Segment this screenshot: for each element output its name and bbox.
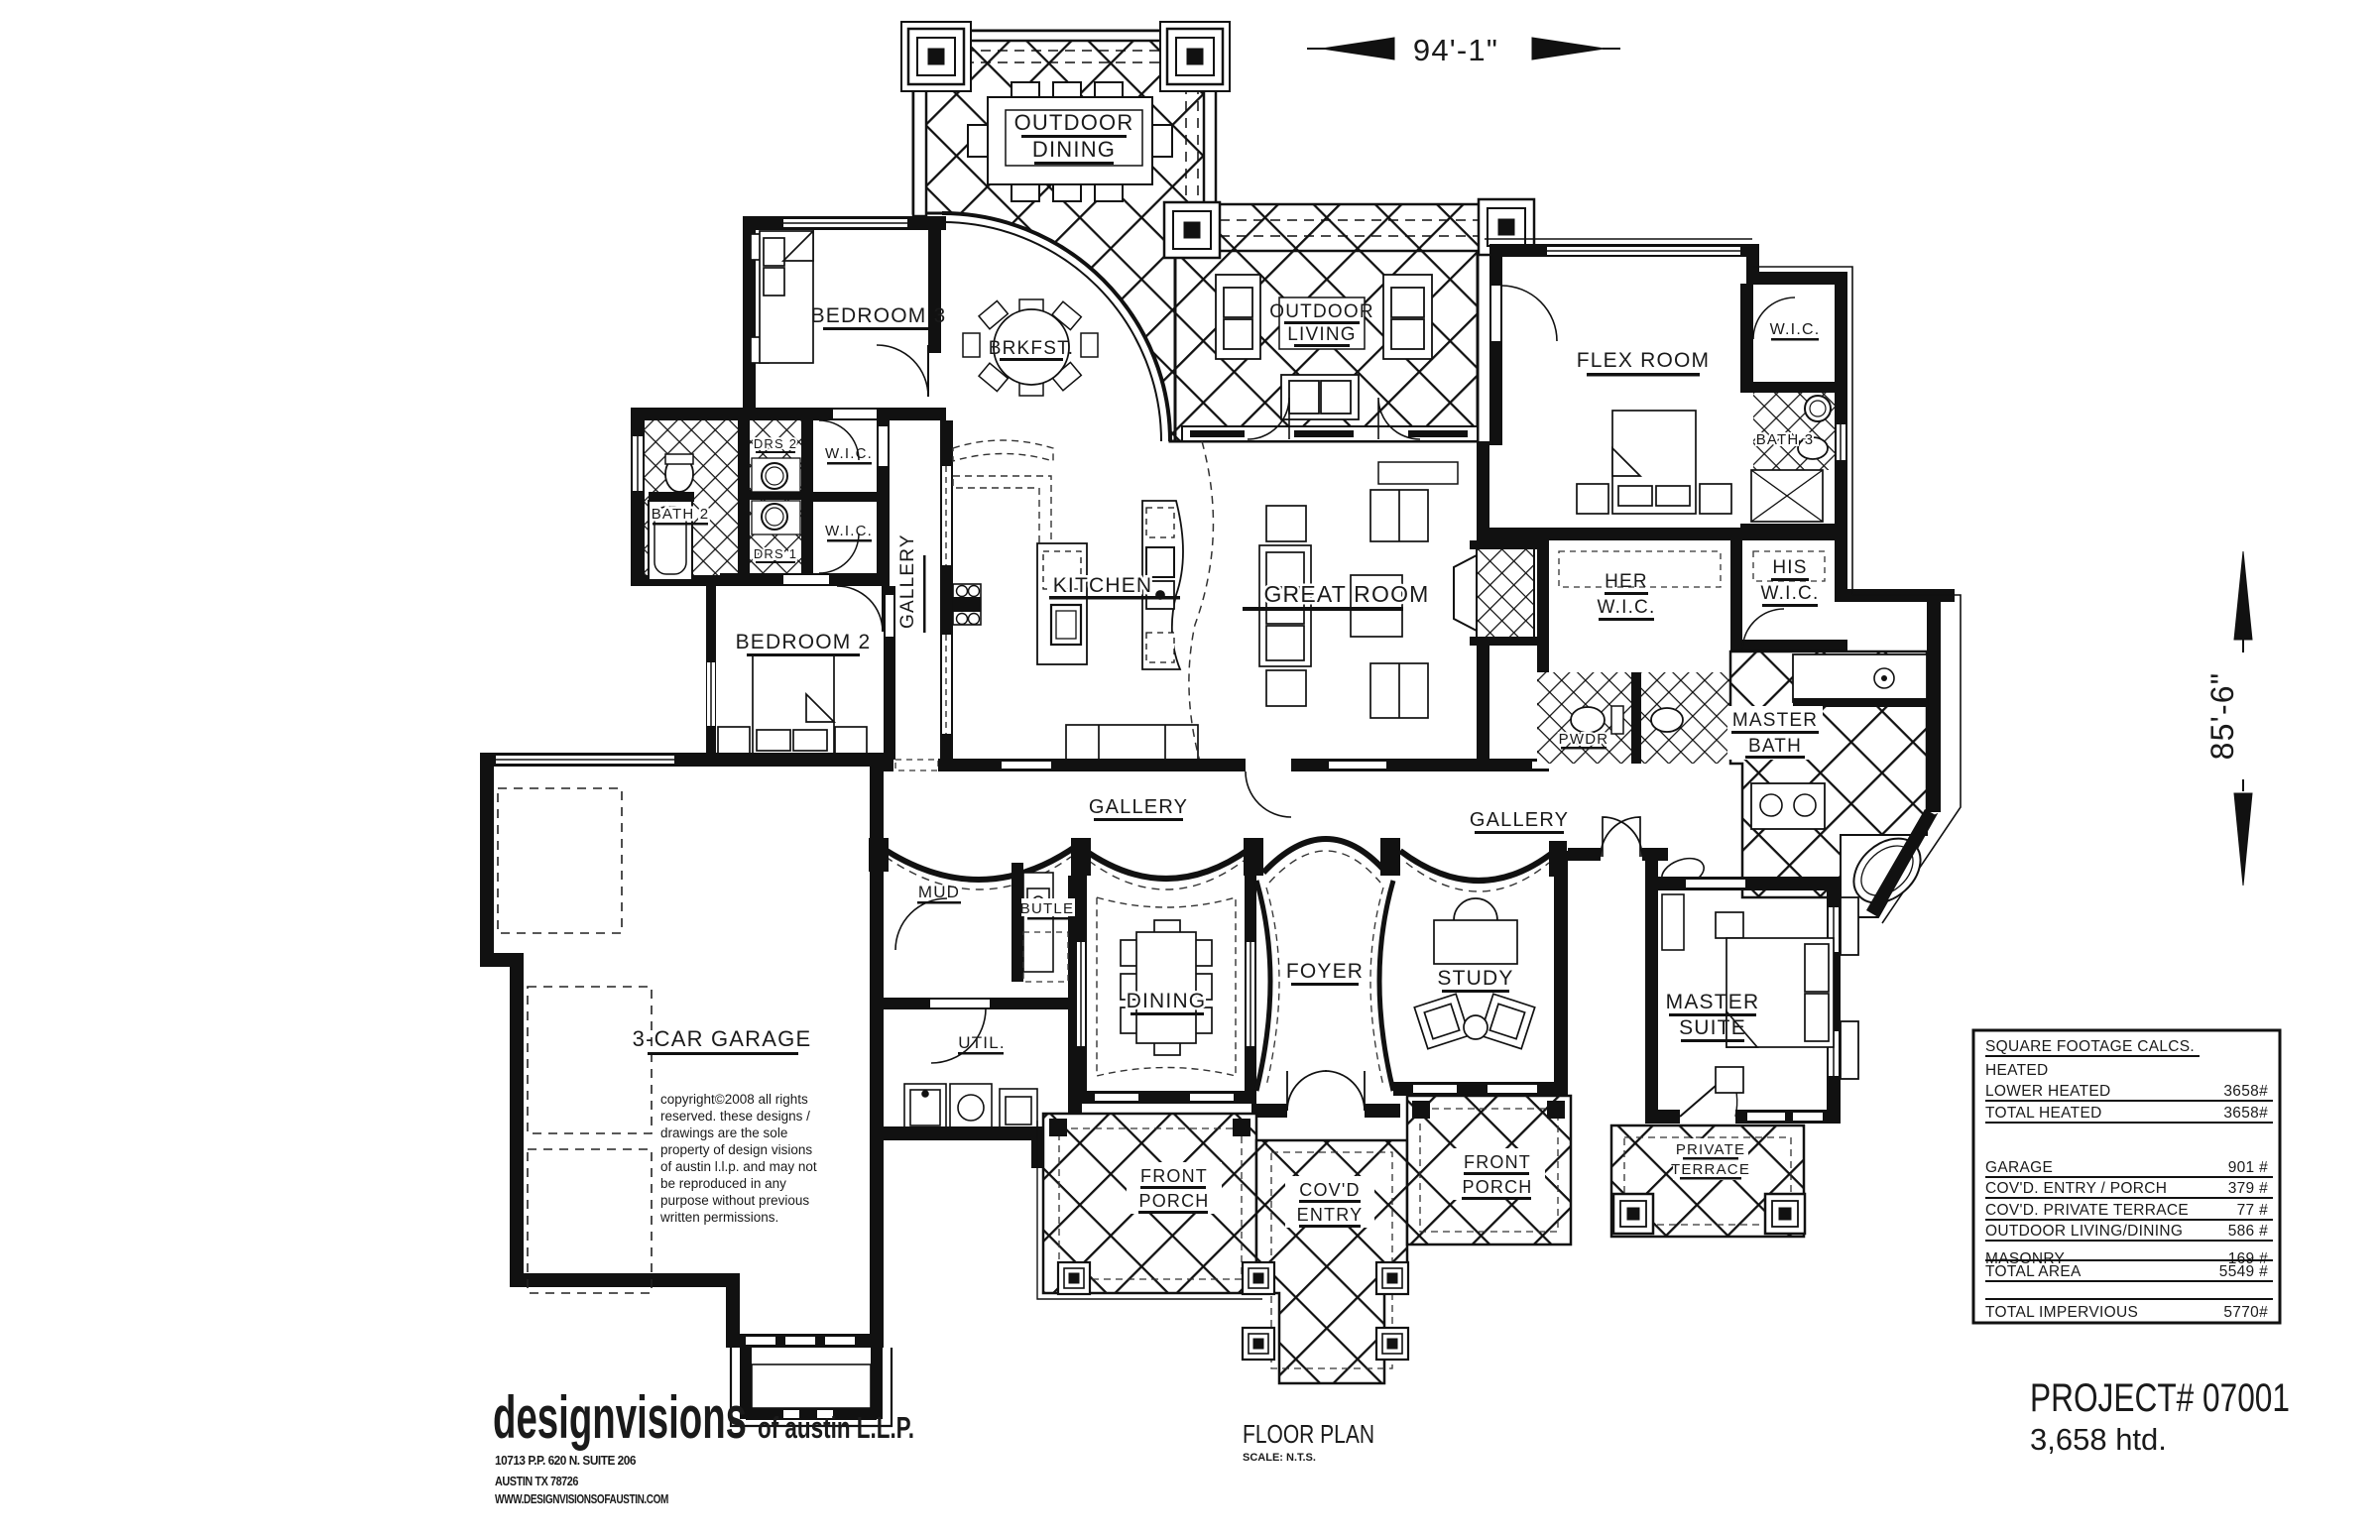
svg-text:LOWER HEATED: LOWER HEATED xyxy=(1985,1083,2110,1100)
svg-text:FRONT: FRONT xyxy=(1464,1152,1531,1172)
svg-text:GALLERY: GALLERY xyxy=(897,533,918,629)
svg-text:GALLERY: GALLERY xyxy=(1470,809,1569,831)
svg-text:reserved. these designs /: reserved. these designs / xyxy=(660,1109,810,1124)
svg-text:901 #: 901 # xyxy=(2228,1159,2268,1176)
svg-text:OUTDOOR LIVING/DINING: OUTDOOR LIVING/DINING xyxy=(1985,1223,2183,1240)
svg-text:MASTER: MASTER xyxy=(1666,991,1760,1013)
svg-text:3658#: 3658# xyxy=(2223,1105,2268,1122)
svg-text:379 #: 379 # xyxy=(2228,1180,2268,1197)
svg-text:TERRACE: TERRACE xyxy=(1671,1161,1750,1178)
svg-text:SUITE: SUITE xyxy=(1679,1016,1746,1039)
svg-text:OUTDOOR: OUTDOOR xyxy=(1269,301,1374,322)
svg-text:586 #: 586 # xyxy=(2228,1223,2268,1240)
svg-text:designvisions: designvisions xyxy=(493,1384,747,1451)
svg-text:HEATED: HEATED xyxy=(1985,1062,2049,1079)
svg-text:W.I.C.: W.I.C. xyxy=(1761,583,1820,604)
svg-text:DINING: DINING xyxy=(1127,990,1207,1012)
svg-text:be reproduced in any: be reproduced in any xyxy=(660,1176,786,1191)
svg-text:GARAGE: GARAGE xyxy=(1985,1159,2053,1176)
svg-text:PWDR: PWDR xyxy=(1559,731,1609,748)
svg-text:BATH 2: BATH 2 xyxy=(652,506,710,523)
svg-text:PRIVATE: PRIVATE xyxy=(1676,1141,1745,1158)
svg-text:94'-1": 94'-1" xyxy=(1413,33,1498,67)
svg-text:of austin L.L.P.: of austin L.L.P. xyxy=(758,1410,914,1445)
svg-text:MASTER: MASTER xyxy=(1732,710,1818,731)
svg-text:DINING: DINING xyxy=(1032,137,1116,162)
svg-text:HIS: HIS xyxy=(1772,557,1807,578)
svg-text:BATH 3: BATH 3 xyxy=(1756,431,1815,448)
svg-text:TOTAL HEATED: TOTAL HEATED xyxy=(1985,1105,2102,1122)
svg-text:purpose without previous: purpose without previous xyxy=(660,1193,809,1208)
svg-text:DRS 2: DRS 2 xyxy=(754,436,797,451)
svg-text:BRKFST.: BRKFST. xyxy=(989,338,1075,359)
svg-text:COV'D: COV'D xyxy=(1299,1180,1360,1200)
svg-text:SCALE: N.T.S.: SCALE: N.T.S. xyxy=(1243,1452,1316,1464)
svg-text:FLEX ROOM: FLEX ROOM xyxy=(1577,349,1710,372)
svg-text:copyright©2008 all rights: copyright©2008 all rights xyxy=(660,1092,808,1107)
svg-text:PORCH: PORCH xyxy=(1462,1177,1532,1197)
svg-text:TOTAL IMPERVIOUS: TOTAL IMPERVIOUS xyxy=(1985,1304,2138,1321)
svg-text:LIVING: LIVING xyxy=(1287,324,1357,345)
svg-text:85'-6": 85'-6" xyxy=(2204,672,2240,761)
svg-text:3658#: 3658# xyxy=(2223,1083,2268,1100)
svg-text:W.I.C.: W.I.C. xyxy=(1598,597,1656,618)
svg-text:ENTRY: ENTRY xyxy=(1297,1205,1364,1225)
svg-text:BEDROOM 3: BEDROOM 3 xyxy=(811,304,947,327)
svg-text:FOYER: FOYER xyxy=(1286,960,1364,983)
svg-text:written permissions.: written permissions. xyxy=(659,1210,778,1225)
svg-text:10713 P.P. 620 N. SUITE 206: 10713 P.P. 620 N. SUITE 206 xyxy=(495,1454,637,1468)
svg-text:UTIL.: UTIL. xyxy=(958,1033,1006,1052)
svg-text:AUSTIN TX 78726: AUSTIN TX 78726 xyxy=(495,1475,578,1488)
svg-text:WWW.DESIGNVISIONSOFAUSTIN.COM: WWW.DESIGNVISIONSOFAUSTIN.COM xyxy=(495,1492,668,1506)
svg-text:5770#: 5770# xyxy=(2223,1304,2268,1321)
svg-text:BATH: BATH xyxy=(1748,736,1802,757)
svg-text:3,658 htd.: 3,658 htd. xyxy=(2030,1422,2167,1457)
svg-text:W.I.C.: W.I.C. xyxy=(825,523,873,539)
svg-text:PORCH: PORCH xyxy=(1138,1191,1209,1211)
svg-text:STUDY: STUDY xyxy=(1437,967,1513,990)
svg-text:OUTDOOR: OUTDOOR xyxy=(1014,110,1134,135)
svg-text:GREAT ROOM: GREAT ROOM xyxy=(1263,581,1429,607)
svg-text:W.I.C.: W.I.C. xyxy=(1770,321,1821,338)
svg-text:FRONT: FRONT xyxy=(1140,1166,1208,1186)
svg-text:3-CAR GARAGE: 3-CAR GARAGE xyxy=(633,1026,812,1051)
svg-text:of austin l.l.p. and may not: of austin l.l.p. and may not xyxy=(660,1159,817,1174)
svg-text:COV'D. PRIVATE TERRACE: COV'D. PRIVATE TERRACE xyxy=(1985,1202,2189,1219)
svg-text:77 #: 77 # xyxy=(2237,1202,2268,1219)
svg-text:KITCHEN: KITCHEN xyxy=(1053,574,1153,597)
svg-text:drawings are the sole: drawings are the sole xyxy=(660,1125,787,1140)
svg-text:TOTAL AREA: TOTAL AREA xyxy=(1985,1263,2082,1280)
svg-text:PROJECT# 07001: PROJECT# 07001 xyxy=(2030,1376,2290,1420)
svg-text:BEDROOM 2: BEDROOM 2 xyxy=(736,631,872,653)
svg-text:W.I.C.: W.I.C. xyxy=(825,445,873,462)
svg-text:COV'D. ENTRY / PORCH: COV'D. ENTRY / PORCH xyxy=(1985,1180,2167,1197)
svg-text:property of design visions: property of design visions xyxy=(660,1142,812,1157)
svg-text:DRS 1: DRS 1 xyxy=(754,546,797,561)
svg-text:FLOOR PLAN: FLOOR PLAN xyxy=(1243,1419,1374,1449)
svg-text:5549 #: 5549 # xyxy=(2219,1263,2268,1280)
svg-text:GALLERY: GALLERY xyxy=(1089,796,1188,818)
svg-text:HER: HER xyxy=(1605,571,1648,592)
svg-text:SQUARE FOOTAGE CALCS.: SQUARE FOOTAGE CALCS. xyxy=(1985,1038,2195,1055)
